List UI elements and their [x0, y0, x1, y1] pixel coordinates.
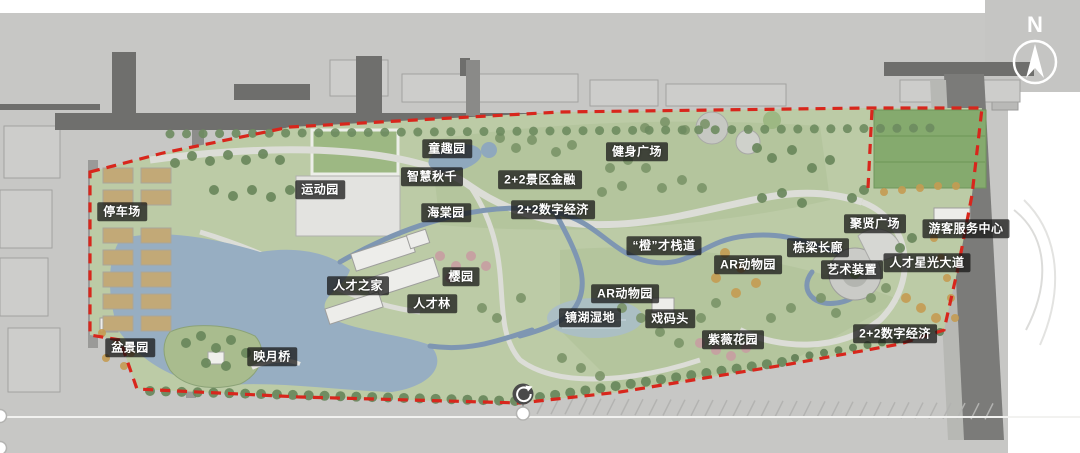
rotate-handle-icon[interactable]: [513, 384, 534, 405]
selection-line[interactable]: [0, 416, 1080, 418]
north-label: N: [1027, 12, 1043, 37]
resize-handle-left[interactable]: [0, 410, 7, 423]
resize-handle-bottom-center[interactable]: [517, 407, 530, 420]
site-plan-image[interactable]: N: [0, 0, 1080, 453]
slide-canvas: N 童趣园智慧秋千2+2景区金融健身广场运动园海棠园2+2数字经济停车场“橙”才…: [0, 0, 1080, 453]
